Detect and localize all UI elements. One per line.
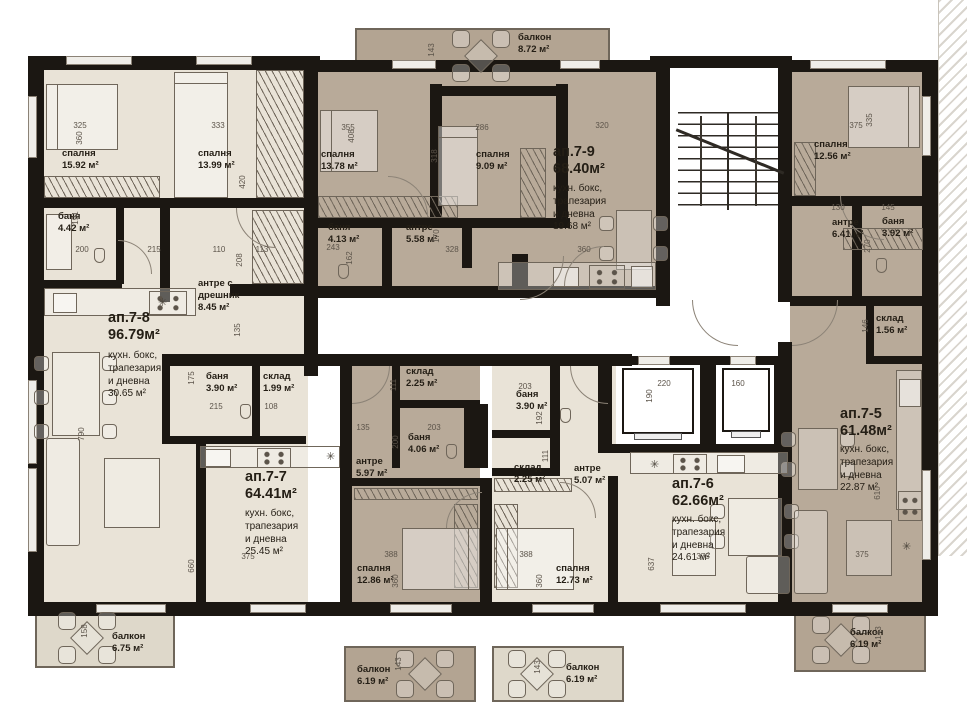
dimension-label: 333 [201, 122, 235, 130]
balcony-label: балкон 6.75 м² [112, 631, 145, 655]
wardrobe [794, 142, 816, 196]
kitchen-living-label: кухн. бокс, трапезария и дневна 19.68 м² [553, 183, 606, 234]
apartment-header-1: ап.7-8 96.79м² [108, 310, 160, 343]
sofa [794, 510, 828, 594]
bed [402, 528, 480, 590]
stairs-arrow-line [700, 116, 702, 206]
balcony-door [560, 60, 600, 69]
dimension-label: 610 [874, 476, 882, 510]
wall [162, 366, 170, 444]
dining-table [728, 498, 782, 556]
dimension-label: 318 [431, 139, 439, 173]
entry-closet-label: антре с дрешник 8.45 м² [198, 278, 239, 314]
wall [550, 364, 560, 476]
chair [34, 424, 49, 439]
dimension-label: 360 [76, 121, 84, 155]
dimension-label: 408 [348, 119, 356, 153]
chair [34, 356, 49, 371]
dimension-label: 145 [871, 204, 905, 212]
dimension-label: 135 [234, 313, 242, 347]
dimension-label: 208 [236, 243, 244, 277]
balcony-label: балкон 8.72 м² [518, 32, 551, 56]
bed [174, 72, 228, 198]
wardrobe [354, 488, 478, 500]
dimension-label: 790 [78, 417, 86, 451]
dimension-label: 143 [395, 647, 403, 681]
window [196, 56, 252, 65]
dimension-label: 660 [188, 549, 196, 583]
chair [653, 246, 668, 261]
dimension-label: 420 [239, 165, 247, 199]
dining-table [798, 428, 838, 490]
dimension-label: 190 [646, 379, 654, 413]
hall-label: антре 5.07 м² [574, 463, 605, 487]
dimension-label: 388 [374, 551, 408, 559]
toilet [876, 258, 887, 273]
dimension-label: 270 [864, 229, 872, 263]
toilet [560, 408, 571, 423]
dimension-label: 360 [392, 564, 400, 598]
window [66, 56, 132, 65]
wardrobe [44, 176, 160, 198]
balcony-table-set [396, 650, 454, 698]
balcony-door [390, 604, 452, 613]
bedroom-label: спалня 9.09 м² [476, 149, 510, 173]
wardrobe [520, 148, 546, 218]
storage-label: склад 1.99 м² [263, 371, 294, 395]
window [660, 604, 746, 613]
stove-symbol: ✳ [650, 458, 659, 471]
window [922, 96, 931, 156]
wall [42, 280, 122, 288]
window [250, 604, 306, 613]
dimension-label: 162 [346, 241, 354, 275]
window [922, 470, 931, 560]
kitchen-counter [896, 370, 922, 510]
wall [382, 228, 392, 292]
chair [781, 432, 796, 447]
dimension-label: 200 [392, 425, 400, 459]
stove-symbol: ✳ [902, 540, 911, 553]
dimension-label: 146 [862, 309, 870, 343]
bedroom-label: спалня 12.56 м² [814, 139, 851, 163]
dining-table [52, 352, 100, 436]
kitchen-living-label: кухн. бокс, трапезария и дневна 30.65 м² [108, 350, 161, 401]
wall [430, 86, 568, 96]
bed [438, 126, 478, 206]
wall [778, 56, 792, 302]
elevator-shaft-1 [622, 368, 694, 434]
dimension-label: 192 [536, 401, 544, 435]
dimension-label: 111 [390, 368, 398, 402]
duct-block [464, 404, 488, 468]
coffee-table [104, 458, 160, 528]
storage-label: склад 2.25 м² [406, 366, 437, 390]
dimension-label: 160 [721, 380, 755, 388]
dimension-label: 143 [428, 33, 436, 67]
floor-plan: ✳ ✳ ✳ ✳ ап.7-8 96.79м²кухн. бокс, трапез… [0, 0, 967, 727]
apartment-header-2: ап.7-9 68.40м² [553, 144, 605, 177]
dimension-label: 375 [231, 553, 265, 561]
kitchen-counter [200, 446, 340, 468]
dining-table [616, 210, 652, 270]
wall [650, 56, 792, 68]
wall [866, 356, 926, 364]
bathroom-label: баня 3.92 м² [882, 216, 913, 240]
balcony-door [532, 604, 594, 613]
toilet [240, 404, 251, 419]
dimension-label: 203 [417, 424, 451, 432]
dimension-label: 113 [245, 246, 279, 254]
stairs-arrow-line [755, 116, 757, 206]
apartment-header-4: ап.7-7 64.41м² [245, 469, 297, 502]
sofa [46, 438, 80, 546]
dimension-label: 388 [509, 551, 543, 559]
apartment-header-3: ап.7-5 61.48м² [840, 406, 892, 439]
window [28, 96, 37, 158]
stove-symbol: ✳ [158, 296, 167, 309]
dimension-label: 215 [137, 246, 171, 254]
dimension-label: 375 [686, 553, 720, 561]
dimension-label: 215 [199, 403, 233, 411]
dimension-label: 143 [875, 616, 883, 650]
wall [340, 364, 352, 616]
balcony-table-set [452, 30, 510, 82]
coffee-table [846, 520, 892, 576]
balcony-label: балкон 6.19 м² [566, 662, 599, 686]
storage-label: склад 2.25 м² [514, 462, 545, 486]
dimension-label: 143 [534, 650, 542, 684]
bed [848, 86, 920, 148]
bathroom-label: баня 4.06 м² [408, 432, 439, 456]
window [810, 60, 886, 69]
wall [230, 284, 310, 296]
dimension-label: 320 [585, 122, 619, 130]
wall [304, 60, 318, 376]
apartment-header-5: ап.7-6 62.66м² [672, 476, 724, 509]
dimension-label: 335 [866, 103, 874, 137]
toilet [446, 444, 457, 459]
dimension-label: 108 [254, 403, 288, 411]
wardrobe [256, 70, 304, 198]
dimension-label: 375 [845, 551, 879, 559]
stairs-divider [727, 112, 729, 210]
storage-label: склад 1.56 м² [876, 313, 907, 337]
bedroom-label: спалня 13.99 м² [198, 148, 235, 172]
dimension-label: 170 [433, 219, 441, 253]
window [28, 468, 37, 552]
chair [102, 424, 117, 439]
dimension-label: 203 [508, 383, 542, 391]
bedroom-label: спалня 12.86 м² [357, 563, 394, 587]
dimension-label: 175 [188, 361, 196, 395]
dimension-label: 360 [567, 246, 601, 254]
dimension-label: 191 [72, 201, 80, 235]
wall [656, 56, 670, 306]
dimension-label: 111 [542, 439, 550, 473]
elevator-door [638, 356, 670, 365]
wall [492, 430, 558, 438]
chair [34, 390, 49, 405]
dimension-label: 135 [346, 424, 380, 432]
bathroom-label: баня 3.90 м² [206, 371, 237, 395]
wall [608, 476, 618, 616]
chair [653, 216, 668, 231]
dimension-label: 110 [202, 246, 236, 254]
wall [700, 356, 716, 453]
dimension-label: 637 [648, 547, 656, 581]
balcony-door [832, 604, 888, 613]
door-arc [692, 300, 738, 346]
kitchen-living-label: кухн. бокс, трапезария и дневна 22.87 м² [840, 444, 893, 495]
balcony-label: балкон 6.19 м² [357, 664, 390, 688]
dimension-label: 286 [465, 124, 499, 132]
dimension-label: 158 [81, 614, 89, 648]
dimension-label: 200 [65, 246, 99, 254]
elevator-door [730, 356, 756, 365]
dimension-label: 360 [536, 564, 544, 598]
stove-symbol: ✳ [326, 450, 335, 463]
dimension-label: 130 [821, 204, 855, 212]
wall [162, 436, 306, 444]
wall [42, 198, 310, 208]
wall [598, 356, 790, 365]
bedroom-label: спалня 12.73 м² [556, 563, 593, 587]
elevator-shaft-2 [722, 368, 770, 432]
hall-label: антре 6.41 м² [832, 217, 863, 241]
sofa [746, 556, 790, 594]
hall-label: антре 5.97 м² [356, 456, 387, 480]
section-hatch [938, 0, 967, 556]
